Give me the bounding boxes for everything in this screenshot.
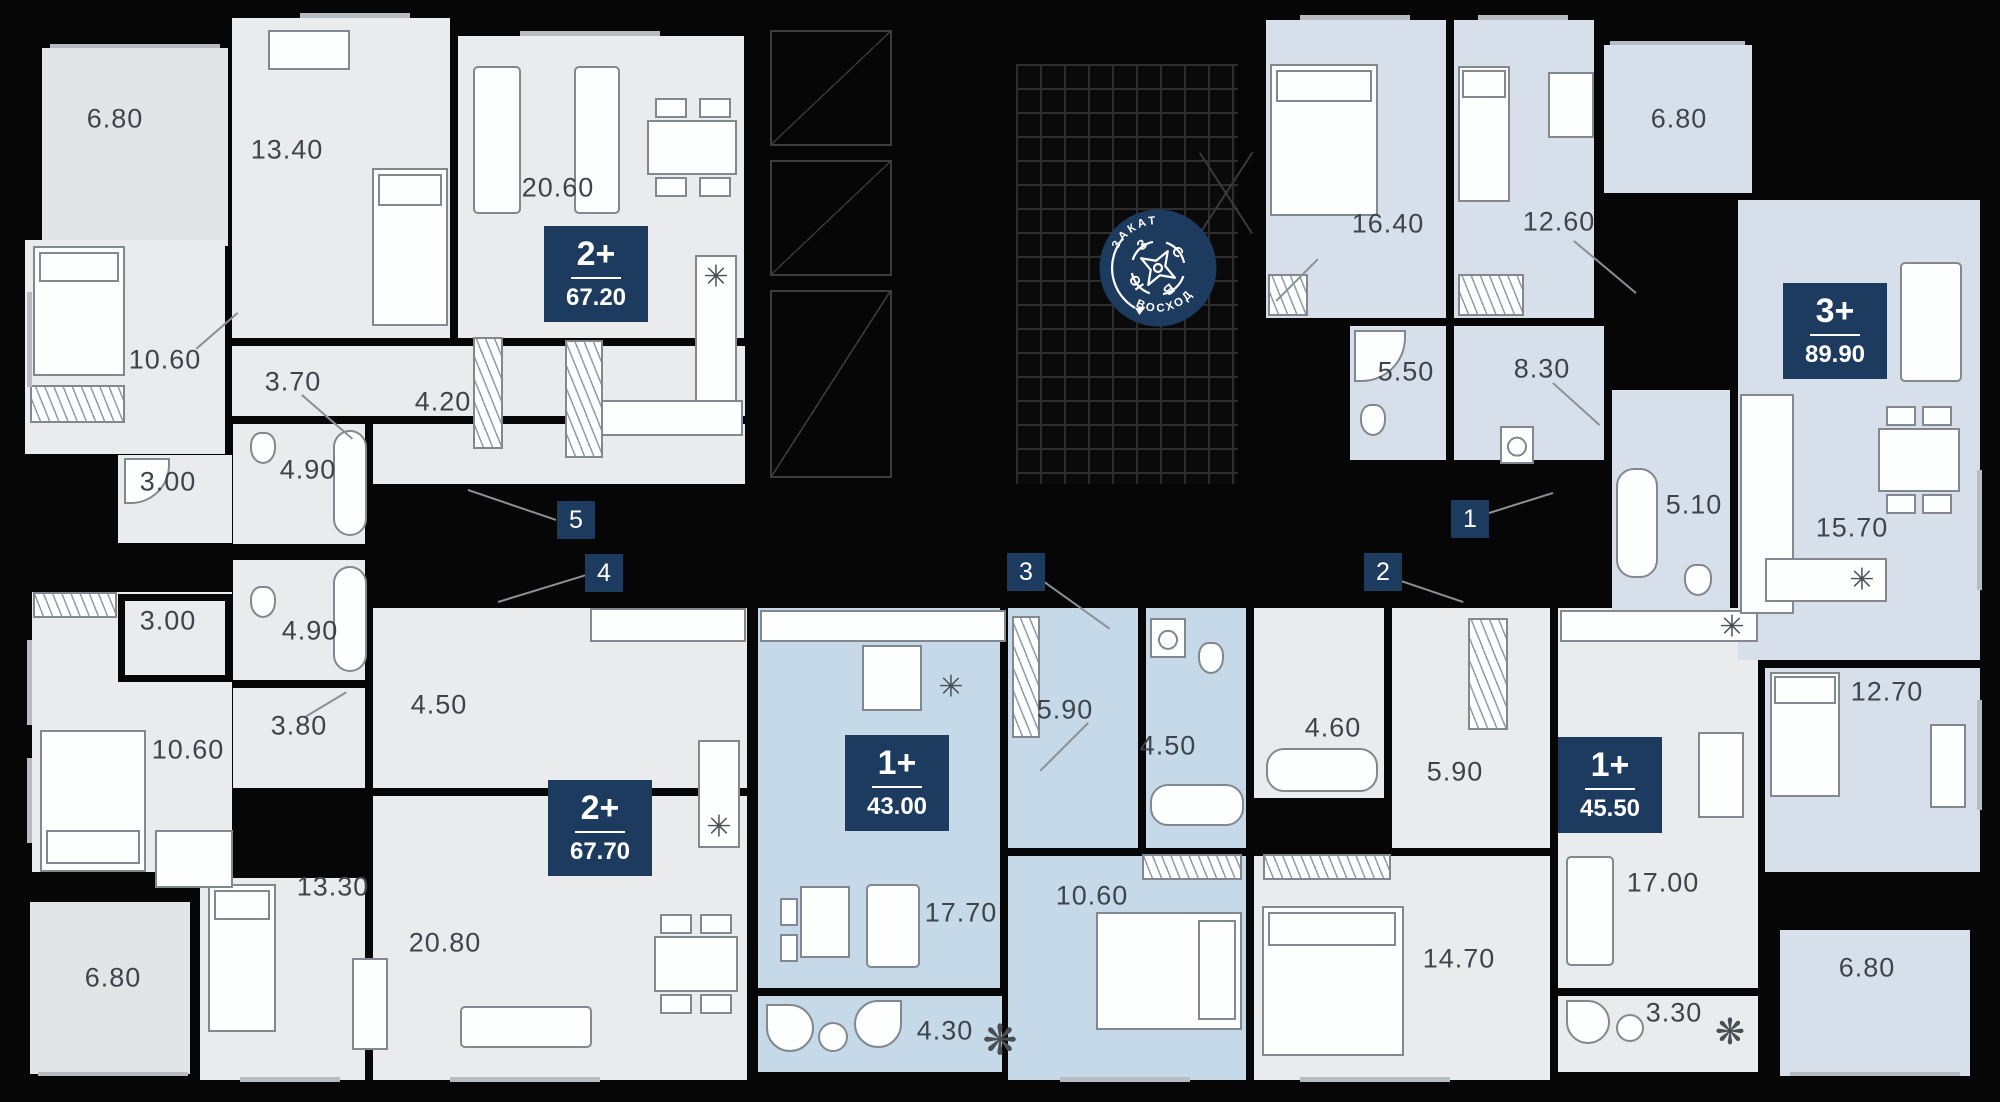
unit-type-label: 2+: [571, 237, 622, 279]
elevator-shaft: [770, 160, 892, 276]
leader-line: [468, 489, 557, 520]
room-area-label: 3.00: [140, 606, 197, 637]
furniture-pillow: [378, 174, 442, 206]
room-area-label: 20.80: [409, 928, 482, 959]
unit-type-label: 1+: [1585, 748, 1636, 790]
unit-badge[interactable]: 1+ 43.00: [845, 735, 949, 831]
plant-icon: ❋: [982, 1016, 1017, 1065]
furniture-sofa: [473, 66, 521, 214]
room-area-label: 4.50: [1140, 731, 1197, 762]
furniture-pillow: [1268, 912, 1396, 946]
furniture-toilet: [1360, 404, 1386, 436]
room-area-label: 6.80: [87, 104, 144, 135]
room-area-label: 3.80: [271, 711, 328, 742]
furniture-counter: [600, 400, 743, 436]
room-area-label: 5.50: [1378, 357, 1435, 388]
floor-plan: ✳ ✳ ✳ ✳ ✳ ❋ ❋ 6.80 13.40 20.60 10.60 3.7…: [0, 0, 2000, 1102]
furniture-bathtub: [1150, 784, 1244, 826]
fridge-icon: ✳: [1849, 563, 1874, 598]
furniture-bathtub: [1616, 468, 1658, 578]
furniture-toilet: [1684, 564, 1712, 596]
leader-line: [1489, 492, 1553, 513]
unit-type-label: 2+: [575, 791, 626, 833]
furniture-desk: [352, 958, 388, 1050]
window: [1610, 41, 1745, 45]
furniture-chair: [660, 994, 692, 1014]
furniture-table: [1698, 732, 1744, 818]
furniture-bathtub: [333, 430, 367, 536]
furniture-chair: [699, 177, 731, 197]
window: [1790, 1072, 1960, 1076]
plant-icon: ❋: [1715, 1011, 1745, 1053]
furniture-pillow: [1276, 70, 1372, 102]
furniture-chair: [1922, 406, 1952, 426]
furniture-washer: [1500, 426, 1534, 464]
room-area-label: 16.40: [1352, 209, 1425, 240]
room-area-label: 6.80: [1839, 953, 1896, 984]
room-area-label: 5.90: [1037, 695, 1094, 726]
room-area-label: 4.20: [415, 387, 472, 418]
fridge-icon: ✳: [706, 810, 731, 845]
unit-marker-1[interactable]: 1: [1451, 500, 1489, 538]
furniture-table: [800, 886, 850, 958]
unit-area-value: 43.00: [867, 793, 927, 821]
room-area-label: 4.90: [280, 455, 337, 486]
room-area-label: 4.60: [1305, 713, 1362, 744]
window: [1977, 700, 1982, 810]
fridge-icon: ✳: [1719, 610, 1744, 645]
room-area-label: 17.00: [1627, 868, 1700, 899]
furniture-armchair: [766, 1004, 814, 1052]
furniture-pillow: [1462, 70, 1506, 98]
furniture-wardrobe: [565, 340, 603, 458]
unit-area-value: 67.70: [570, 838, 630, 866]
room-area-label: 3.00: [140, 467, 197, 498]
unit-marker-4[interactable]: 4: [585, 554, 623, 592]
furniture-chair: [655, 177, 687, 197]
unit-marker-2[interactable]: 2: [1364, 553, 1402, 591]
furniture-chair: [700, 914, 732, 934]
window: [1300, 1077, 1450, 1082]
window: [450, 1077, 600, 1082]
window: [1060, 1077, 1190, 1082]
room-area-label: 12.70: [1851, 677, 1924, 708]
furniture-desk: [1930, 724, 1966, 808]
elevator-shaft: [770, 290, 892, 478]
furniture-pillow: [214, 890, 270, 920]
window: [300, 13, 410, 18]
room-area-label: 15.70: [1816, 513, 1889, 544]
furniture-sofa: [1566, 856, 1614, 966]
furniture-sofa: [460, 1006, 592, 1048]
furniture-sofa: [1900, 262, 1962, 382]
furniture-side-table: [1616, 1014, 1644, 1042]
room-area-label: 5.90: [1427, 757, 1484, 788]
furniture-counter: [760, 610, 1006, 642]
furniture-chair: [655, 98, 687, 118]
room-area-label: 12.60: [1523, 207, 1596, 238]
unit-marker-5[interactable]: 5: [557, 501, 595, 539]
furniture-pillow: [39, 252, 119, 282]
furniture-desk: [1548, 72, 1594, 138]
furniture-table: [654, 936, 738, 992]
furniture-wardrobe: [30, 385, 125, 423]
room-area-label: 10.60: [152, 735, 225, 766]
room-area-label: 6.80: [1651, 104, 1708, 135]
window: [1977, 470, 1982, 590]
window: [1300, 15, 1410, 20]
room-area-label: 3.30: [1646, 998, 1703, 1029]
room-area-label: 20.60: [522, 173, 595, 204]
furniture-chair: [1886, 494, 1916, 514]
elevator-shaft: [770, 30, 892, 146]
unit-badge[interactable]: 2+ 67.70: [548, 780, 652, 876]
furniture-armchair: [1566, 1000, 1610, 1044]
room-area-label: 17.70: [925, 898, 998, 929]
furniture-pillow: [1774, 676, 1836, 704]
room-area-label: 3.70: [265, 367, 322, 398]
furniture-toilet: [250, 586, 276, 618]
unit-area-value: 89.90: [1805, 341, 1865, 369]
window: [240, 1077, 340, 1082]
unit-marker-3[interactable]: 3: [1007, 553, 1045, 591]
compass-logo: ЗАКАТ ВОСХОД З С В Ю: [1096, 206, 1220, 330]
furniture-pillow: [1198, 920, 1236, 1020]
room-area-label: 4.50: [411, 690, 468, 721]
room-area-label: 8.30: [1514, 354, 1571, 385]
room-area-label: 4.30: [917, 1016, 974, 1047]
unit-area-value: 67.20: [566, 284, 626, 312]
room-area-label: 10.60: [1056, 881, 1129, 912]
unit-badge[interactable]: 2+ 67.20: [544, 226, 648, 322]
fridge-icon: ✳: [703, 260, 728, 295]
fridge-icon: ✳: [938, 670, 963, 705]
window: [1478, 15, 1568, 20]
furniture-chair: [780, 898, 798, 926]
furniture-chair: [699, 98, 731, 118]
room-area-label: 10.60: [129, 345, 202, 376]
furniture-pillow: [46, 830, 140, 864]
furniture-desk: [268, 30, 350, 70]
unit-area-value: 45.50: [1580, 795, 1640, 823]
furniture-chair: [1922, 494, 1952, 514]
unit-badge[interactable]: 3+ 89.90: [1783, 283, 1887, 379]
furniture-toilet: [1198, 642, 1224, 674]
window: [27, 292, 32, 387]
furniture-washer: [1150, 618, 1186, 658]
furniture-chair: [1886, 406, 1916, 426]
furniture-cabinet: [155, 830, 233, 888]
furniture-toilet: [250, 432, 276, 464]
room-area-label: 13.40: [251, 135, 324, 166]
unit-type-label: 3+: [1810, 294, 1861, 336]
room-area-label: 5.10: [1666, 490, 1723, 521]
furniture-wardrobe: [1142, 854, 1242, 880]
furniture-wardrobe: [1263, 854, 1391, 880]
furniture-wardrobe: [1458, 274, 1524, 316]
furniture-chair: [660, 914, 692, 934]
furniture-chair: [780, 934, 798, 962]
room-area-label: 6.80: [85, 963, 142, 994]
furniture-counter: [862, 645, 922, 711]
unit-type-label: 1+: [872, 746, 923, 788]
furniture-wardrobe: [473, 337, 503, 449]
furniture-sofa: [866, 884, 920, 968]
leader-line: [1398, 579, 1464, 603]
window: [27, 758, 32, 843]
furniture-wardrobe: [1468, 618, 1508, 730]
furniture-counter: [590, 608, 746, 642]
furniture-side-table: [818, 1022, 848, 1052]
room-area-label: 4.90: [282, 616, 339, 647]
leader-line: [498, 574, 586, 602]
room-area-label: 14.70: [1423, 944, 1496, 975]
furniture-armchair: [854, 1000, 902, 1048]
window: [38, 1072, 188, 1076]
furniture-chair: [700, 994, 732, 1014]
unit-badge[interactable]: 1+ 45.50: [1558, 737, 1662, 833]
furniture-bathtub: [1266, 748, 1378, 792]
window: [27, 640, 32, 725]
furniture-wardrobe: [33, 592, 117, 618]
window: [50, 44, 220, 48]
furniture-table: [1878, 428, 1960, 492]
window: [520, 31, 660, 36]
furniture-table: [647, 120, 737, 175]
furniture-wardrobe: [1268, 274, 1308, 316]
apt5-balcony-floor[interactable]: [42, 48, 228, 246]
room-area-label: 13.30: [297, 872, 370, 903]
